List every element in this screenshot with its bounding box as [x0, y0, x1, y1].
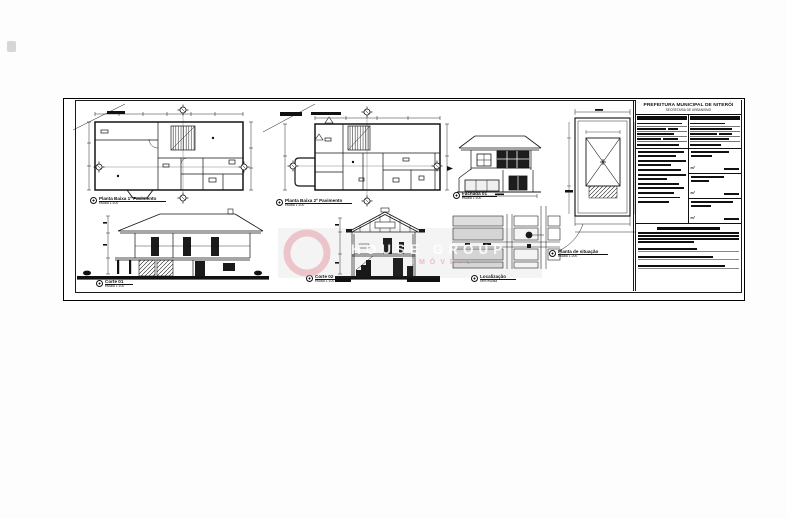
screenshot-canvas: HOUSE GROUP IMÓVEIS Planta Baixa 1º Pavi…: [0, 0, 787, 518]
drawing-planta-situacao: [557, 109, 635, 252]
detail-marker-icon: [90, 197, 97, 204]
label-fachada: Fachada 01 escala 1:100: [453, 191, 497, 201]
drawing-planta-baixa-2-pavimento: [263, 104, 453, 207]
detail-marker-icon: [549, 250, 556, 257]
drawing-planta-baixa-1-pavimento: [73, 104, 253, 204]
watermark-text: HOUSE GROUP: [351, 242, 507, 257]
detail-marker-icon: [96, 280, 103, 287]
label-corte-01: Corte 01 escala 1:100: [96, 279, 133, 289]
detail-marker-icon: [276, 199, 283, 206]
drawing-fachada: [457, 136, 541, 198]
watermark-subtext: IMÓVEIS: [412, 259, 476, 266]
page-smudge: [7, 41, 16, 52]
label-planta-baixa-1: Planta Baixa 1º Pavimento escala 1:100: [90, 196, 166, 206]
label-planta-situacao: Planta de situação escala 1:200: [549, 249, 608, 259]
detail-marker-icon: [453, 192, 460, 199]
watermark-logo-ring: [282, 229, 332, 279]
drawing-corte-01: [77, 209, 269, 280]
label-planta-baixa-2: Planta Baixa 2º Pavimento escala 1:100: [276, 198, 352, 208]
